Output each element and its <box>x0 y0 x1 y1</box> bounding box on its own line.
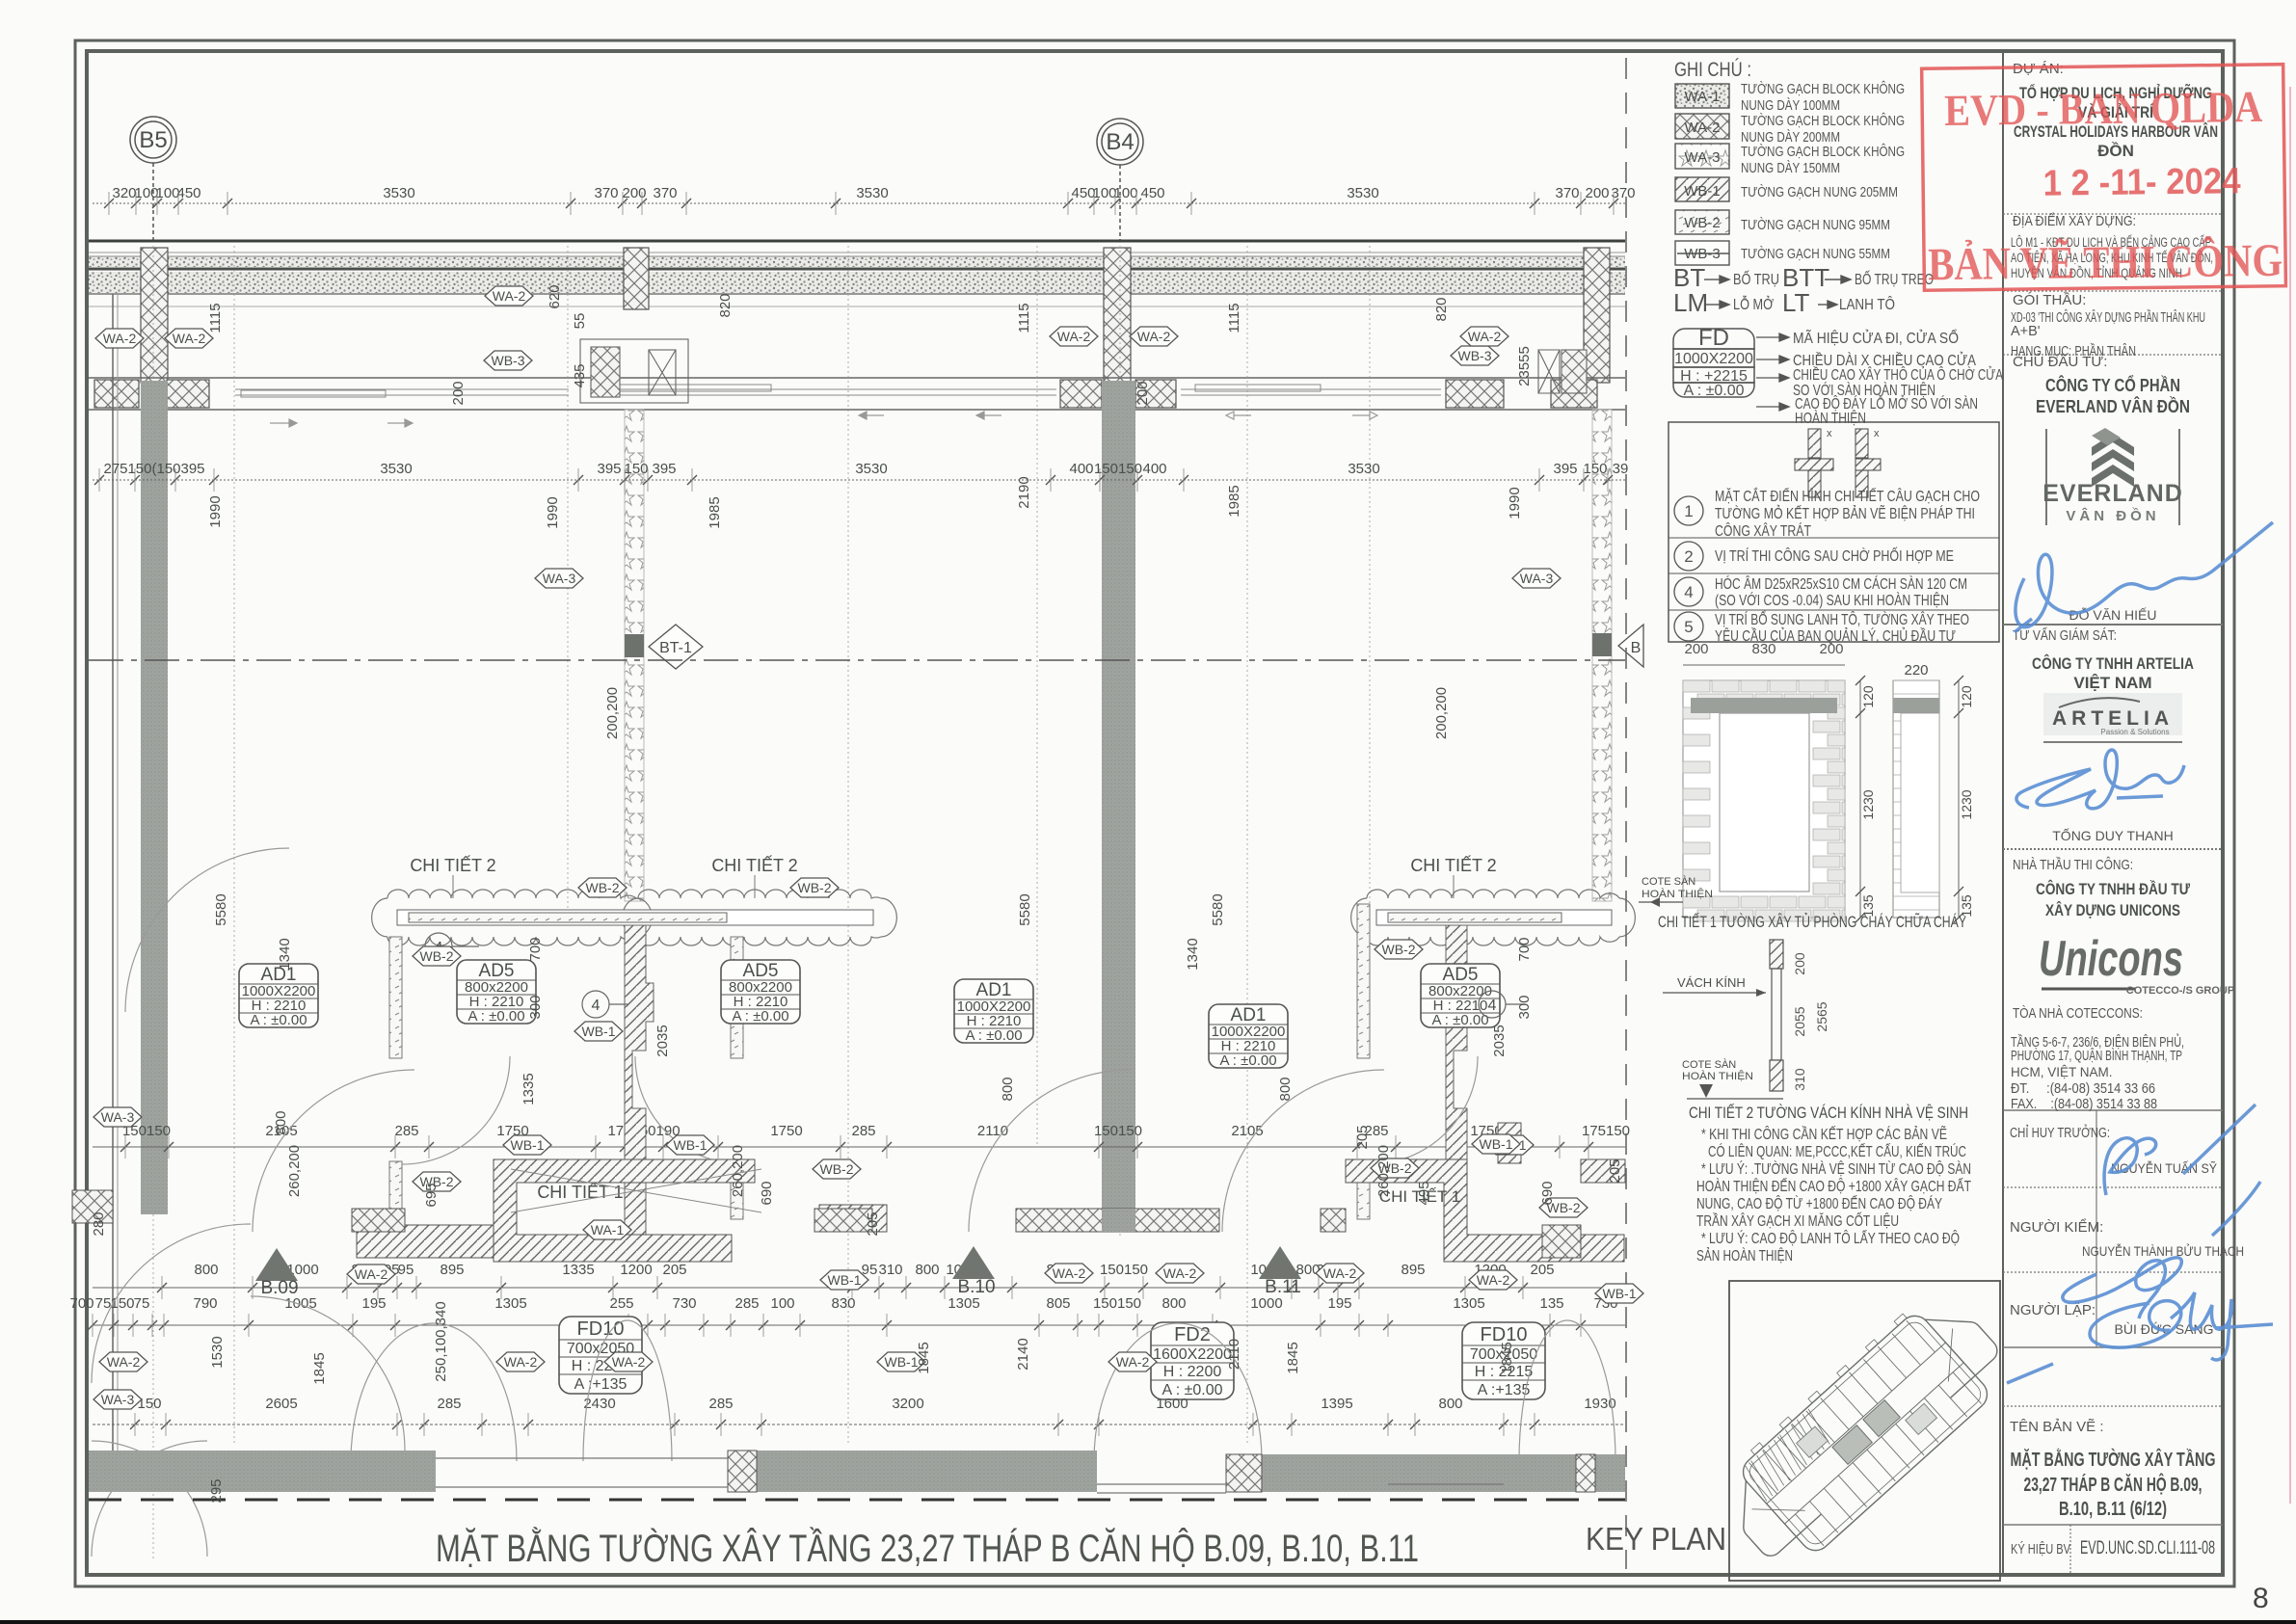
svg-text:WA-2: WA-2 <box>1323 1265 1357 1281</box>
svg-text:2035: 2035 <box>1491 1025 1508 1056</box>
svg-text:SẢN HOÀN THIỆN: SẢN HOÀN THIỆN <box>1696 1248 1793 1265</box>
svg-text:310: 310 <box>878 1262 902 1278</box>
svg-text:3530: 3530 <box>856 185 888 201</box>
svg-text:2035: 2035 <box>654 1025 671 1056</box>
svg-text:4: 4 <box>1488 998 1497 1014</box>
svg-text:FD: FD <box>1698 325 1729 351</box>
svg-text:WB-2: WB-2 <box>798 880 832 895</box>
svg-text:450: 450 <box>1140 185 1164 201</box>
svg-text:285: 285 <box>708 1396 733 1412</box>
svg-text:A : ±0.00: A : ±0.00 <box>1431 1012 1488 1028</box>
svg-text:A : ±0.00: A : ±0.00 <box>467 1008 524 1025</box>
svg-text:WB-2: WB-2 <box>820 1161 854 1177</box>
svg-text:150150: 150150 <box>1094 1123 1142 1139</box>
svg-text:1395: 1395 <box>1321 1396 1352 1412</box>
svg-text:PHƯỜNG 17, QUẬN BÌNH THẠNH, TP: PHƯỜNG 17, QUẬN BÌNH THẠNH, TP <box>2011 1048 2182 1064</box>
svg-text:TÊN BẢN VẼ :: TÊN BẢN VẼ : <box>2010 1419 2104 1435</box>
svg-text:690: 690 <box>1539 1181 1556 1205</box>
svg-text:AD5: AD5 <box>1443 965 1479 985</box>
svg-text:1305: 1305 <box>494 1295 526 1312</box>
svg-text:280: 280 <box>91 1211 107 1236</box>
svg-text:FAX. :(84-08) 3514 33 88: FAX. :(84-08) 3514 33 88 <box>2011 1097 2157 1112</box>
svg-text:2: 2 <box>1684 547 1693 566</box>
svg-text:3530: 3530 <box>855 461 887 477</box>
svg-text:1600X2200: 1600X2200 <box>1153 1346 1232 1363</box>
svg-text:395: 395 <box>180 461 204 477</box>
svg-text:4: 4 <box>592 998 601 1014</box>
svg-text:CHI TIẾT 1: CHI TIẾT 1 <box>537 1182 623 1202</box>
svg-text:EVD.UNC.SD.CLI.111-08: EVD.UNC.SD.CLI.111-08 <box>2080 1538 2215 1558</box>
svg-text:WA-2: WA-2 <box>1477 1272 1510 1288</box>
svg-text:205: 205 <box>865 1211 881 1236</box>
svg-text:A : ±0.00: A : ±0.00 <box>250 1012 307 1028</box>
svg-text:AD5: AD5 <box>743 961 779 981</box>
svg-text:TÒA NHÀ COTECCONS:: TÒA NHÀ COTECCONS: <box>2013 1005 2143 1022</box>
svg-text:150150: 150150 <box>1093 1295 1141 1312</box>
svg-text:TƯỜNG GẠCH NUNG 95MM: TƯỜNG GẠCH NUNG 95MM <box>1741 217 1890 233</box>
svg-text:WB-2: WB-2 <box>420 948 454 964</box>
svg-text:200: 200 <box>450 381 467 405</box>
svg-text:800: 800 <box>915 1262 939 1278</box>
svg-text:805: 805 <box>1046 1295 1070 1312</box>
svg-text:B.10: B.10 <box>957 1277 995 1297</box>
svg-text:800: 800 <box>1438 1396 1462 1412</box>
svg-text:370: 370 <box>653 185 677 201</box>
svg-text:1335: 1335 <box>521 1073 537 1105</box>
svg-text:B: B <box>1631 640 1642 656</box>
svg-text:ĐỊA ĐIỂM XÂY DỰNG:: ĐỊA ĐIỂM XÂY DỰNG: <box>2013 212 2136 229</box>
svg-text:A : ±0.00: A : ±0.00 <box>1683 383 1744 399</box>
svg-text:1305: 1305 <box>948 1295 979 1312</box>
svg-text:150150: 150150 <box>1094 461 1142 477</box>
svg-text:300: 300 <box>1516 995 1533 1019</box>
svg-text:WB-1: WB-1 <box>885 1354 919 1370</box>
svg-text:NUNG, CAO ĐỘ TỪ +1800 ĐẾN CAO: NUNG, CAO ĐỘ TỪ +1800 ĐẾN CAO ĐỘ ĐÁY <box>1696 1196 1942 1212</box>
svg-text:370: 370 <box>594 185 618 201</box>
svg-text:HOÀN THIỆN ĐẾN CAO ĐỘ +1800 XÂ: HOÀN THIỆN ĐẾN CAO ĐỘ +1800 XÂY GẠCH ĐẤT <box>1696 1179 1971 1195</box>
svg-text:395: 395 <box>652 461 676 477</box>
svg-text:TƯỜNG GẠCH NUNG 55MM: TƯỜNG GẠCH NUNG 55MM <box>1741 246 1890 262</box>
svg-text:HCM, VIỆT NAM.: HCM, VIỆT NAM. <box>2011 1065 2113 1079</box>
svg-text:ĐT. :(84-08) 3514 33 66: ĐT. :(84-08) 3514 33 66 <box>2011 1081 2155 1097</box>
svg-text:1845: 1845 <box>1285 1342 1301 1373</box>
svg-text:TƯỜNG MỎ KẾT HỢP BẢN VẼ BIỆN: TƯỜNG MỎ KẾT HỢP BẢN VẼ BIỆN PHÁP THI <box>1715 505 1975 522</box>
svg-text:400: 400 <box>1142 461 1166 477</box>
svg-text:820: 820 <box>717 293 734 317</box>
svg-text:5580: 5580 <box>213 893 229 925</box>
svg-text:* KHI THI CÔNG CẦN KẾT HỢP CÁC: * KHI THI CÔNG CẦN KẾT HỢP CÁC BẢN VẼ <box>1701 1127 1947 1143</box>
svg-text:Unicons: Unicons <box>2039 931 2183 987</box>
svg-text:800: 800 <box>1277 1077 1294 1101</box>
svg-text:COTE SÀN: COTE SÀN <box>1642 875 1695 888</box>
svg-text:100: 100 <box>770 1295 794 1312</box>
svg-text:A+B': A+B' <box>2011 324 2041 339</box>
svg-text:150: 150 <box>624 461 648 477</box>
svg-text:BẢN VẼ THI CÔNG: BẢN VẼ THI CÔNG <box>1928 234 2283 290</box>
svg-text:2055: 2055 <box>1792 1006 1807 1036</box>
svg-text:150: 150 <box>110 1295 134 1312</box>
svg-text:WB-1: WB-1 <box>582 1024 616 1039</box>
svg-text:CÔNG TY TNHH ARTELIA: CÔNG TY TNHH ARTELIA <box>2032 654 2194 673</box>
svg-text:620: 620 <box>547 284 563 308</box>
svg-text:830: 830 <box>1751 641 1775 657</box>
svg-text:A : ±0.00: A : ±0.00 <box>1219 1052 1276 1069</box>
svg-text:700: 700 <box>527 937 544 961</box>
svg-text:435: 435 <box>572 363 588 387</box>
svg-text:B5: B5 <box>139 127 167 153</box>
svg-text:1600: 1600 <box>1156 1396 1188 1412</box>
svg-text:CHỈ HUY TRƯỞNG:: CHỈ HUY TRƯỞNG: <box>2010 1124 2110 1141</box>
svg-text:200: 200 <box>1135 381 1151 405</box>
svg-text:WB-2: WB-2 <box>1684 215 1721 231</box>
svg-text:MẶT BẰNG TƯỜNG XÂY TẦNG: MẶT BẰNG TƯỜNG XÂY TẦNG <box>2011 1448 2216 1471</box>
svg-text:3530: 3530 <box>1347 185 1378 201</box>
svg-text:95: 95 <box>398 1262 414 1278</box>
svg-text:220: 220 <box>1904 662 1928 679</box>
svg-text:205: 205 <box>1607 1158 1623 1183</box>
svg-text:FD10: FD10 <box>577 1318 625 1340</box>
svg-text:HOÀN THIỆN: HOÀN THIỆN <box>1682 1070 1753 1082</box>
svg-text:3530: 3530 <box>383 185 414 201</box>
svg-text:MẶT BẰNG TƯỜNG XÂY TẦNG 23,27: MẶT BẰNG TƯỜNG XÂY TẦNG 23,27 THÁP B CĂN… <box>436 1526 1419 1570</box>
svg-text:WA-3: WA-3 <box>101 1392 135 1407</box>
svg-text:1530: 1530 <box>209 1336 226 1368</box>
svg-text:690: 690 <box>759 1181 775 1205</box>
svg-text:A : ±0.00: A : ±0.00 <box>732 1008 788 1025</box>
svg-text:1985: 1985 <box>1226 485 1242 517</box>
svg-text:WA-2: WA-2 <box>1057 329 1091 344</box>
svg-text:CÓ LIÊN QUAN: ME,PCCC,KẾT CẤU,: CÓ LIÊN QUAN: ME,PCCC,KẾT CẤU, KIẾN TRÚC <box>1708 1144 1966 1160</box>
svg-text:KÝ HIỆU BV: KÝ HIỆU BV <box>2011 1541 2070 1557</box>
svg-text:WB-3: WB-3 <box>492 353 525 368</box>
svg-text:320: 320 <box>112 185 136 201</box>
svg-text:1115: 1115 <box>1016 303 1032 333</box>
svg-text:WA-2: WA-2 <box>1137 329 1171 344</box>
svg-text:2110: 2110 <box>1226 1339 1242 1370</box>
svg-text:WB-1: WB-1 <box>1603 1286 1637 1301</box>
svg-text:WA-2: WA-2 <box>173 331 206 346</box>
svg-text:260,200: 260,200 <box>286 1145 303 1197</box>
svg-text:A :+135: A :+135 <box>1478 1382 1531 1398</box>
svg-text:195: 195 <box>1327 1295 1351 1312</box>
svg-text:2190: 2190 <box>1016 476 1032 508</box>
svg-text:260,200: 260,200 <box>730 1145 746 1197</box>
svg-text:LT: LT <box>1782 288 1810 317</box>
svg-text:CHI TIẾT 2: CHI TIẾT 2 <box>410 855 495 875</box>
svg-text:WB-2: WB-2 <box>1382 942 1416 957</box>
svg-text:WB-1: WB-1 <box>674 1137 707 1153</box>
svg-text:23555: 23555 <box>1516 346 1533 386</box>
svg-text:WB-1: WB-1 <box>1684 183 1721 200</box>
svg-text:* LƯU Ý: .TƯỜNG NHÀ VỆ SINH TỪ: * LƯU Ý: .TƯỜNG NHÀ VỆ SINH TỪ CAO ĐỘ SÀ… <box>1701 1161 1971 1178</box>
svg-text:2105: 2105 <box>1231 1123 1263 1139</box>
svg-text:NHÀ THẦU THI CÔNG:: NHÀ THẦU THI CÔNG: <box>2013 857 2133 873</box>
svg-text:COTE SÀN: COTE SÀN <box>1682 1058 1736 1071</box>
svg-text:695: 695 <box>423 1183 440 1207</box>
svg-text:CHI TIẾT 2: CHI TIẾT 2 <box>1410 855 1496 875</box>
svg-text:200: 200 <box>1585 185 1609 201</box>
svg-text:NUNG DÀY 150MM: NUNG DÀY 150MM <box>1741 160 1840 176</box>
svg-text:75: 75 <box>95 1295 112 1312</box>
svg-text:TƯỜNG GẠCH BLOCK KHÔNG: TƯỜNG GẠCH BLOCK KHÔNG <box>1741 113 1905 129</box>
svg-text:820: 820 <box>1433 297 1450 321</box>
svg-text:WB-2: WB-2 <box>586 880 620 895</box>
svg-text:1000X2200: 1000X2200 <box>1674 351 1753 367</box>
svg-text:150(150: 150(150 <box>127 461 180 477</box>
svg-text:B4: B4 <box>1106 129 1134 155</box>
svg-text:285: 285 <box>734 1295 759 1312</box>
svg-text:800: 800 <box>273 1110 289 1134</box>
svg-text:1000: 1000 <box>1250 1295 1282 1312</box>
svg-text:5580: 5580 <box>1210 893 1226 925</box>
svg-text:395: 395 <box>597 461 621 477</box>
svg-text:KEY PLAN: KEY PLAN <box>1586 1521 1726 1557</box>
svg-text:HOÀN THIỆN: HOÀN THIỆN <box>1795 409 1866 427</box>
svg-text:730: 730 <box>672 1295 696 1312</box>
svg-text:1750: 1750 <box>770 1123 802 1139</box>
svg-text:200: 200 <box>1684 641 1708 657</box>
svg-text:100: 100 <box>1113 185 1137 201</box>
svg-text:HOÀN THIỆN: HOÀN THIỆN <box>1642 888 1713 900</box>
svg-text:WB-3: WB-3 <box>1684 246 1721 262</box>
svg-text:LM: LM <box>1673 288 1708 317</box>
svg-text:3200: 3200 <box>892 1396 923 1412</box>
svg-text:ARTELIA: ARTELIA <box>2052 707 2174 730</box>
svg-text:NGƯỜI LẬP:: NGƯỜI LẬP: <box>2010 1302 2096 1318</box>
svg-text:260,200: 260,200 <box>1375 1145 1392 1197</box>
svg-text:WA-3: WA-3 <box>101 1109 135 1125</box>
svg-text:x: x <box>1874 428 1880 439</box>
svg-text:TƯỜNG GẠCH NUNG 205MM: TƯỜNG GẠCH NUNG 205MM <box>1741 184 1898 200</box>
svg-text:295: 295 <box>208 1478 225 1503</box>
svg-text:200: 200 <box>1792 952 1807 975</box>
svg-text:255: 255 <box>609 1295 633 1312</box>
svg-text:WB-1: WB-1 <box>828 1272 862 1288</box>
svg-text:150: 150 <box>1583 461 1607 477</box>
svg-text:205: 205 <box>1354 1125 1371 1149</box>
svg-text:830: 830 <box>831 1295 855 1312</box>
svg-text:LỖ MỞ: LỖ MỞ <box>1733 295 1774 313</box>
svg-text:5: 5 <box>1684 618 1693 636</box>
svg-text:800: 800 <box>1000 1077 1016 1101</box>
svg-text:WA-1: WA-1 <box>1685 89 1721 105</box>
svg-text:1115: 1115 <box>207 303 224 333</box>
svg-text:700: 700 <box>69 1295 93 1312</box>
svg-text:1845: 1845 <box>311 1352 328 1384</box>
svg-text:23,27 THÁP B CĂN HỘ B.09,: 23,27 THÁP B CĂN HỘ B.09, <box>2024 1473 2203 1496</box>
svg-text:WA-2: WA-2 <box>103 331 137 346</box>
svg-text:CÔNG XÂY TRÁT: CÔNG XÂY TRÁT <box>1715 523 1811 540</box>
svg-text:1340: 1340 <box>277 938 293 970</box>
svg-text:310: 310 <box>1792 1068 1807 1091</box>
svg-text:BỐ TRỤ: BỐ TRỤ <box>1733 269 1779 288</box>
svg-text:1335: 1335 <box>562 1262 594 1278</box>
svg-text:* LƯU Ý: CAO ĐỘ LANH TÔ LẤY TH: * LƯU Ý: CAO ĐỘ LANH TÔ LẤY THEO CAO ĐỘ <box>1701 1231 1960 1247</box>
svg-text:370: 370 <box>1611 185 1635 201</box>
svg-text:1230: 1230 <box>1860 789 1876 819</box>
svg-text:VÂN ĐỒN: VÂN ĐỒN <box>2066 507 2159 524</box>
svg-text:EVERLAND: EVERLAND <box>2042 480 2183 507</box>
svg-text:VIỆT NAM: VIỆT NAM <box>2073 674 2151 692</box>
svg-text:285: 285 <box>851 1123 875 1139</box>
svg-text:LANH TÔ: LANH TÔ <box>1839 295 1895 313</box>
svg-text:450: 450 <box>176 185 200 201</box>
svg-text:3530: 3530 <box>380 461 412 477</box>
svg-text:4: 4 <box>1684 583 1693 601</box>
svg-text:CHI TIẾT 2 TƯỜNG VÁCH KÍNH NH: CHI TIẾT 2 TƯỜNG VÁCH KÍNH NHÀ VỆ SINH <box>1689 1104 1968 1122</box>
svg-text:CÔNG TY TNHH ĐẦU TƯ: CÔNG TY TNHH ĐẦU TƯ <box>2036 880 2191 898</box>
svg-text:120: 120 <box>1860 685 1876 708</box>
svg-text:370: 370 <box>1555 185 1579 201</box>
svg-text:WA-3: WA-3 <box>1520 571 1554 586</box>
svg-text:TƯỜNG GẠCH BLOCK KHÔNG: TƯỜNG GẠCH BLOCK KHÔNG <box>1741 81 1905 97</box>
svg-text:285: 285 <box>437 1396 461 1412</box>
svg-text:WA-2: WA-2 <box>504 1354 538 1370</box>
svg-text:WA-2: WA-2 <box>1116 1354 1150 1370</box>
svg-text:300: 300 <box>527 995 544 1019</box>
svg-text:1115: 1115 <box>1226 303 1242 333</box>
svg-text:GÓI THẦU:: GÓI THẦU: <box>2013 292 2086 308</box>
svg-text:895: 895 <box>1401 1262 1425 1278</box>
svg-text:FD2: FD2 <box>1174 1324 1211 1345</box>
svg-text:WA-3: WA-3 <box>543 571 576 586</box>
svg-text:GHI CHÚ :: GHI CHÚ : <box>1674 59 1751 81</box>
svg-text:WA-2: WA-2 <box>107 1354 141 1370</box>
svg-text:200,200: 200,200 <box>604 687 621 739</box>
svg-text:200: 200 <box>622 185 646 201</box>
svg-text:BỐ TRỤ TREO: BỐ TRỤ TREO <box>1855 269 1934 288</box>
svg-text:2605: 2605 <box>265 1396 297 1412</box>
svg-text:5580: 5580 <box>1017 893 1033 925</box>
svg-text:135: 135 <box>1539 1295 1563 1312</box>
svg-text:WA-2: WA-2 <box>612 1354 646 1370</box>
svg-text:EVERLAND VÂN ĐỒN: EVERLAND VÂN ĐỒN <box>2036 396 2190 416</box>
svg-text:WA-2: WA-2 <box>1053 1265 1086 1281</box>
svg-text:1990: 1990 <box>1507 487 1523 519</box>
svg-text:WA-2: WA-2 <box>1468 329 1502 344</box>
svg-text:1845: 1845 <box>1499 1342 1515 1373</box>
svg-text:CHI TIẾT 1 TƯỜNG XÂY TỦ PHÒNG: CHI TIẾT 1 TƯỜNG XÂY TỦ PHÒNG CHÁY CHỮA … <box>1658 912 1966 931</box>
svg-text:VÁCH KÍNH: VÁCH KÍNH <box>1677 975 1746 990</box>
svg-text:A : ±0.00: A : ±0.00 <box>965 1027 1022 1044</box>
svg-text:700: 700 <box>1516 937 1533 961</box>
svg-text:1 2 -11- 2024: 1 2 -11- 2024 <box>2042 161 2240 204</box>
svg-text:2565: 2565 <box>1814 1001 1829 1031</box>
svg-text:120: 120 <box>1959 685 1974 708</box>
svg-text:WA-2: WA-2 <box>493 288 526 304</box>
svg-text:MÃ HIỆU CỬA ĐI, CỬA SỔ: MÃ HIỆU CỬA ĐI, CỬA SỔ <box>1793 328 1959 347</box>
svg-text:TƯỜNG GẠCH BLOCK KHÔNG: TƯỜNG GẠCH BLOCK KHÔNG <box>1741 144 1905 160</box>
svg-text:200: 200 <box>1819 641 1843 657</box>
svg-text:WA-2: WA-2 <box>355 1266 388 1282</box>
svg-text:175150: 175150 <box>1582 1123 1630 1139</box>
svg-text:B.10, B.11 (6/12): B.10, B.11 (6/12) <box>2059 1499 2167 1520</box>
svg-text:1340: 1340 <box>1185 938 1201 970</box>
svg-text:WA-3: WA-3 <box>1685 149 1721 166</box>
svg-text:CHI TIẾT 2: CHI TIẾT 2 <box>711 855 797 875</box>
svg-text:WB-3: WB-3 <box>1458 348 1492 363</box>
svg-text:TRẦN XÂY GẠCH XI MĂNG CỐT LIỆU: TRẦN XÂY GẠCH XI MĂNG CỐT LIỆU <box>1696 1212 1899 1230</box>
svg-text:Passion & Solutions: Passion & Solutions <box>2100 728 2169 736</box>
svg-text:1200: 1200 <box>620 1262 652 1278</box>
svg-text:1305: 1305 <box>1453 1295 1484 1312</box>
svg-text:1845: 1845 <box>916 1342 932 1373</box>
svg-text:VỊ TRÍ THI CÔNG SAU CHỜ PHỐI H: VỊ TRÍ THI CÔNG SAU CHỜ PHỐI HỢP ME <box>1715 547 1954 565</box>
svg-text:ĐỖ VĂN HIẾU: ĐỖ VĂN HIẾU <box>2069 606 2156 623</box>
svg-text:x: x <box>1827 428 1832 439</box>
svg-text:495: 495 <box>1416 1181 1432 1205</box>
svg-text:895: 895 <box>440 1262 464 1278</box>
svg-text:NUNG DÀY 100MM: NUNG DÀY 100MM <box>1741 97 1840 114</box>
svg-text:285: 285 <box>394 1123 418 1139</box>
svg-text:VỊ TRÍ BỔ SUNG LANH TÔ, TƯỜNG: VỊ TRÍ BỔ SUNG LANH TÔ, TƯỜNG XÂY THEO <box>1715 611 1969 628</box>
svg-text:3530: 3530 <box>1348 461 1379 477</box>
svg-text:205: 205 <box>1530 1262 1554 1278</box>
svg-text:XÂY DỰNG UNICONS: XÂY DỰNG UNICONS <box>2045 901 2180 919</box>
svg-text:HẠNG MỤC: PHẦN THÂN: HẠNG MỤC: PHẦN THÂN <box>2011 343 2136 359</box>
svg-text:55: 55 <box>572 313 588 330</box>
svg-text:WA-2: WA-2 <box>1685 120 1721 136</box>
svg-text:250,100,340: 250,100,340 <box>433 1301 449 1381</box>
svg-text:1990: 1990 <box>545 496 561 528</box>
svg-text:205: 205 <box>662 1262 686 1278</box>
svg-text:WB-1: WB-1 <box>1480 1136 1513 1152</box>
svg-text:NGUYỄN THÀNH BỬU THẠCH: NGUYỄN THÀNH BỬU THẠCH <box>2082 1242 2244 1259</box>
svg-text:AD1: AD1 <box>976 980 1012 1000</box>
svg-text:1990: 1990 <box>207 495 224 527</box>
svg-text:ĐỒN: ĐỒN <box>2097 142 2134 160</box>
svg-text:1: 1 <box>1684 502 1693 520</box>
svg-text:75: 75 <box>134 1295 150 1312</box>
svg-text:2140: 2140 <box>1015 1338 1031 1370</box>
svg-text:AD1: AD1 <box>1231 1005 1267 1025</box>
svg-text:1230: 1230 <box>1959 789 1974 819</box>
svg-text:200,200: 200,200 <box>1433 687 1450 739</box>
svg-text:150150: 150150 <box>1100 1262 1148 1278</box>
svg-text:790: 790 <box>193 1295 217 1312</box>
svg-text:TƯ VẤN GIÁM SÁT:: TƯ VẤN GIÁM SÁT: <box>2013 627 2117 644</box>
svg-text:COTECCO-/S GROUP: COTECCO-/S GROUP <box>2126 985 2234 997</box>
svg-text:195: 195 <box>361 1295 386 1312</box>
svg-text:8: 8 <box>2253 1583 2269 1614</box>
svg-text:AD5: AD5 <box>479 961 515 981</box>
svg-text:WB-1: WB-1 <box>511 1137 545 1153</box>
svg-text:275: 275 <box>103 461 127 477</box>
svg-text:(SO VỚI COS -0.04) SAU KHI HOÀ: (SO VỚI COS -0.04) SAU KHI HOÀN THIỆN <box>1715 593 1949 609</box>
svg-text:WA-2: WA-2 <box>1163 1265 1197 1281</box>
svg-text:1985: 1985 <box>707 496 723 528</box>
svg-text:B.11: B.11 <box>1265 1277 1301 1297</box>
svg-text:MẶT CẮT ĐIỂN HÌNH CHI TIẾT CÂU: MẶT CẮT ĐIỂN HÌNH CHI TIẾT CÂU GẠCH CHO <box>1715 488 1980 505</box>
svg-text:NGƯỜI KIỂM:: NGƯỜI KIỂM: <box>2010 1218 2103 1236</box>
svg-text:CÔNG TY CỔ PHẦN: CÔNG TY CỔ PHẦN <box>2045 375 2180 395</box>
svg-text:A :+135: A :+135 <box>574 1376 627 1393</box>
svg-text:BT-1: BT-1 <box>659 640 692 656</box>
svg-text:CHIỀU CAO XÂY THÔ CỦA Ô CHỜ CỬ: CHIỀU CAO XÂY THÔ CỦA Ô CHỜ CỬA <box>1793 365 2003 384</box>
svg-text:400: 400 <box>1069 461 1093 477</box>
svg-text:395: 395 <box>1553 461 1577 477</box>
svg-text:HÓC ÂM D25xR25xS10 CM CÁCH SÀN: HÓC ÂM D25xR25xS10 CM CÁCH SÀN 120 CM <box>1715 576 1967 593</box>
svg-text:WA-1: WA-1 <box>591 1222 625 1238</box>
svg-text:H : 2200: H : 2200 <box>1163 1364 1222 1380</box>
svg-text:800: 800 <box>1161 1295 1186 1312</box>
svg-text:EVD - BAN QLDA: EVD - BAN QLDA <box>1944 82 2263 135</box>
svg-text:800: 800 <box>194 1262 218 1278</box>
svg-text:TỐNG DUY THANH: TỐNG DUY THANH <box>2052 827 2174 843</box>
